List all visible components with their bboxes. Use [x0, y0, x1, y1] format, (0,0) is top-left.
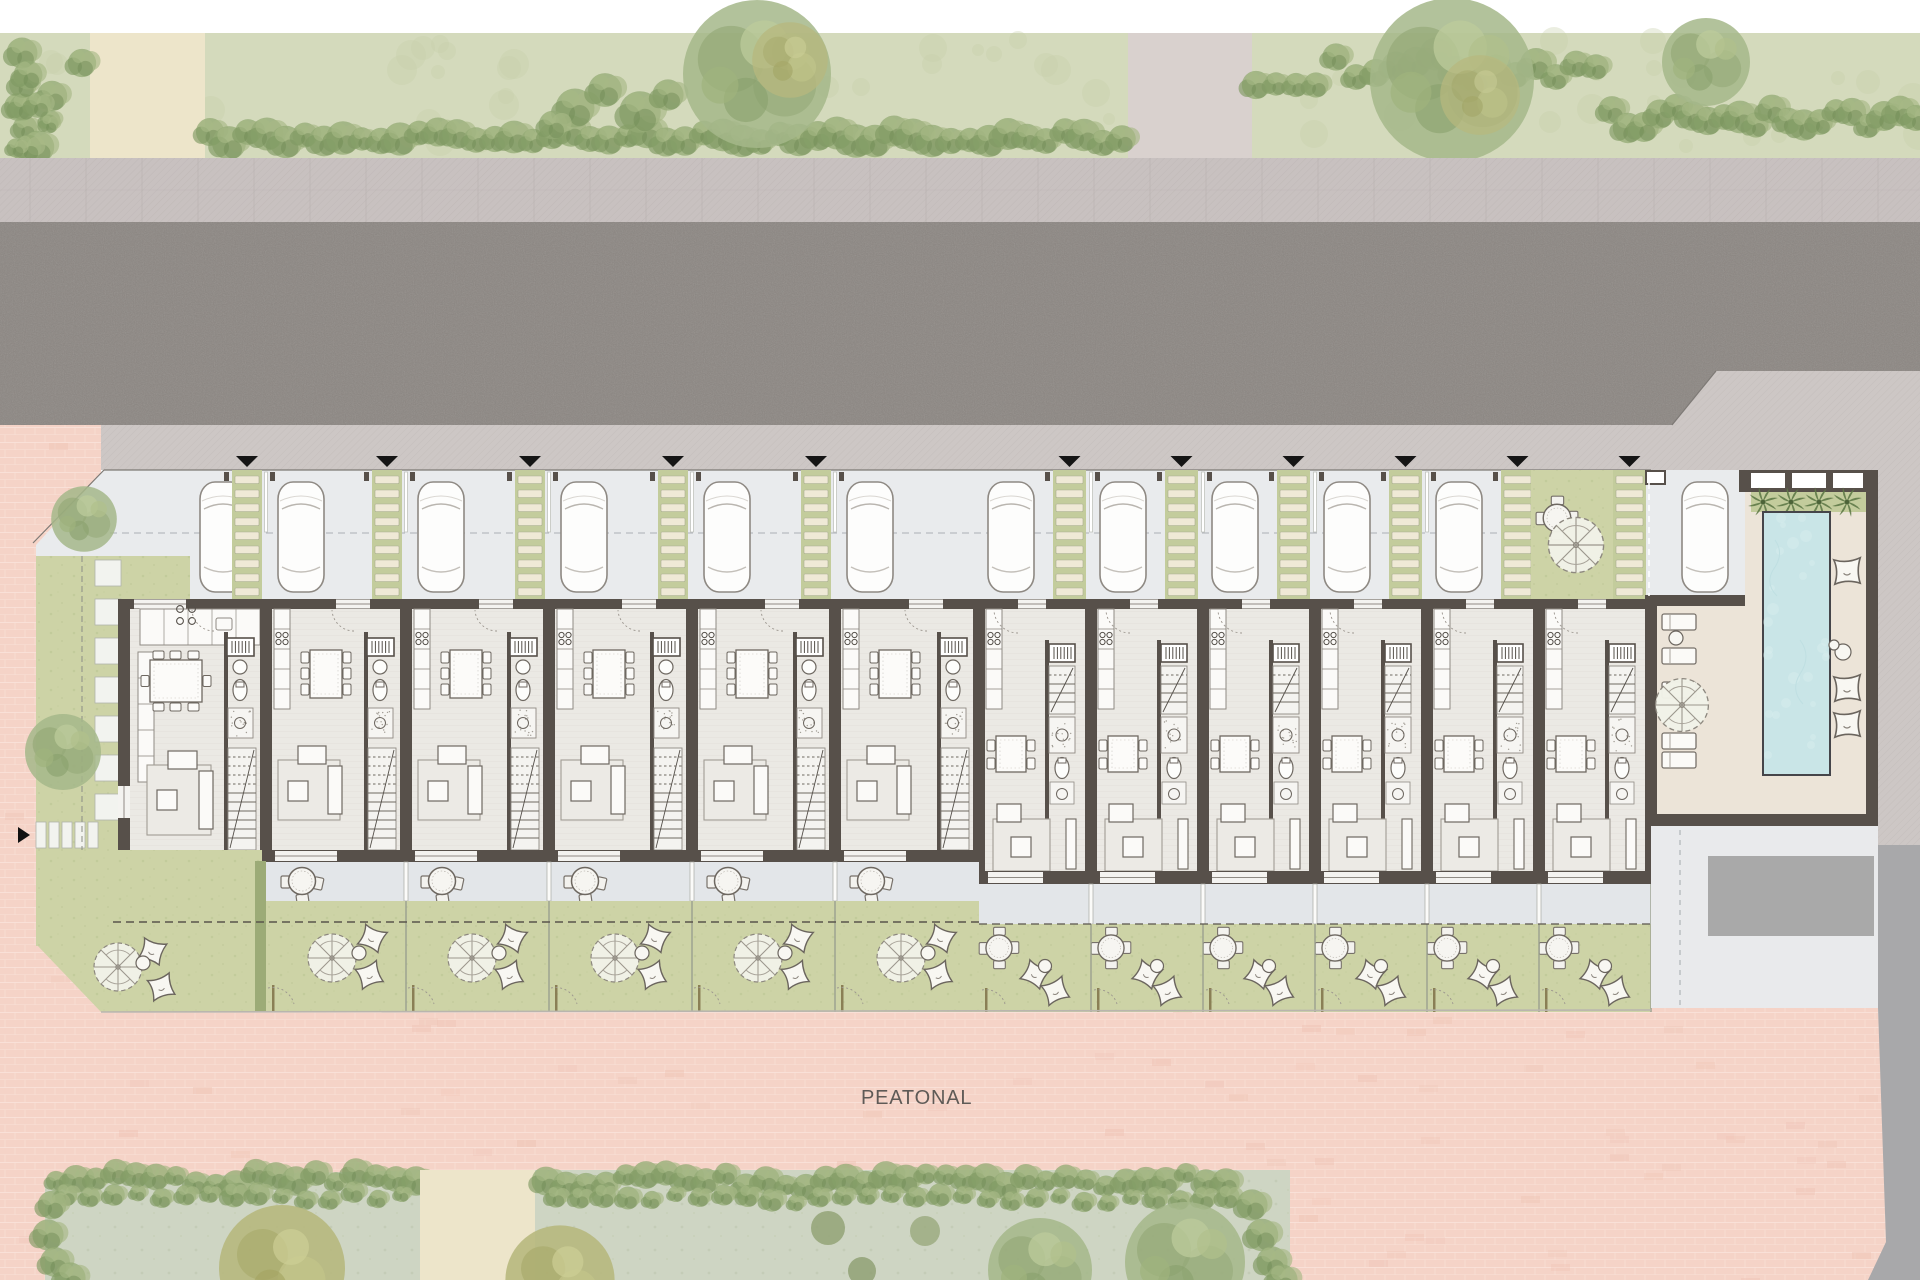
svg-text:PEATONAL: PEATONAL	[861, 1087, 972, 1109]
